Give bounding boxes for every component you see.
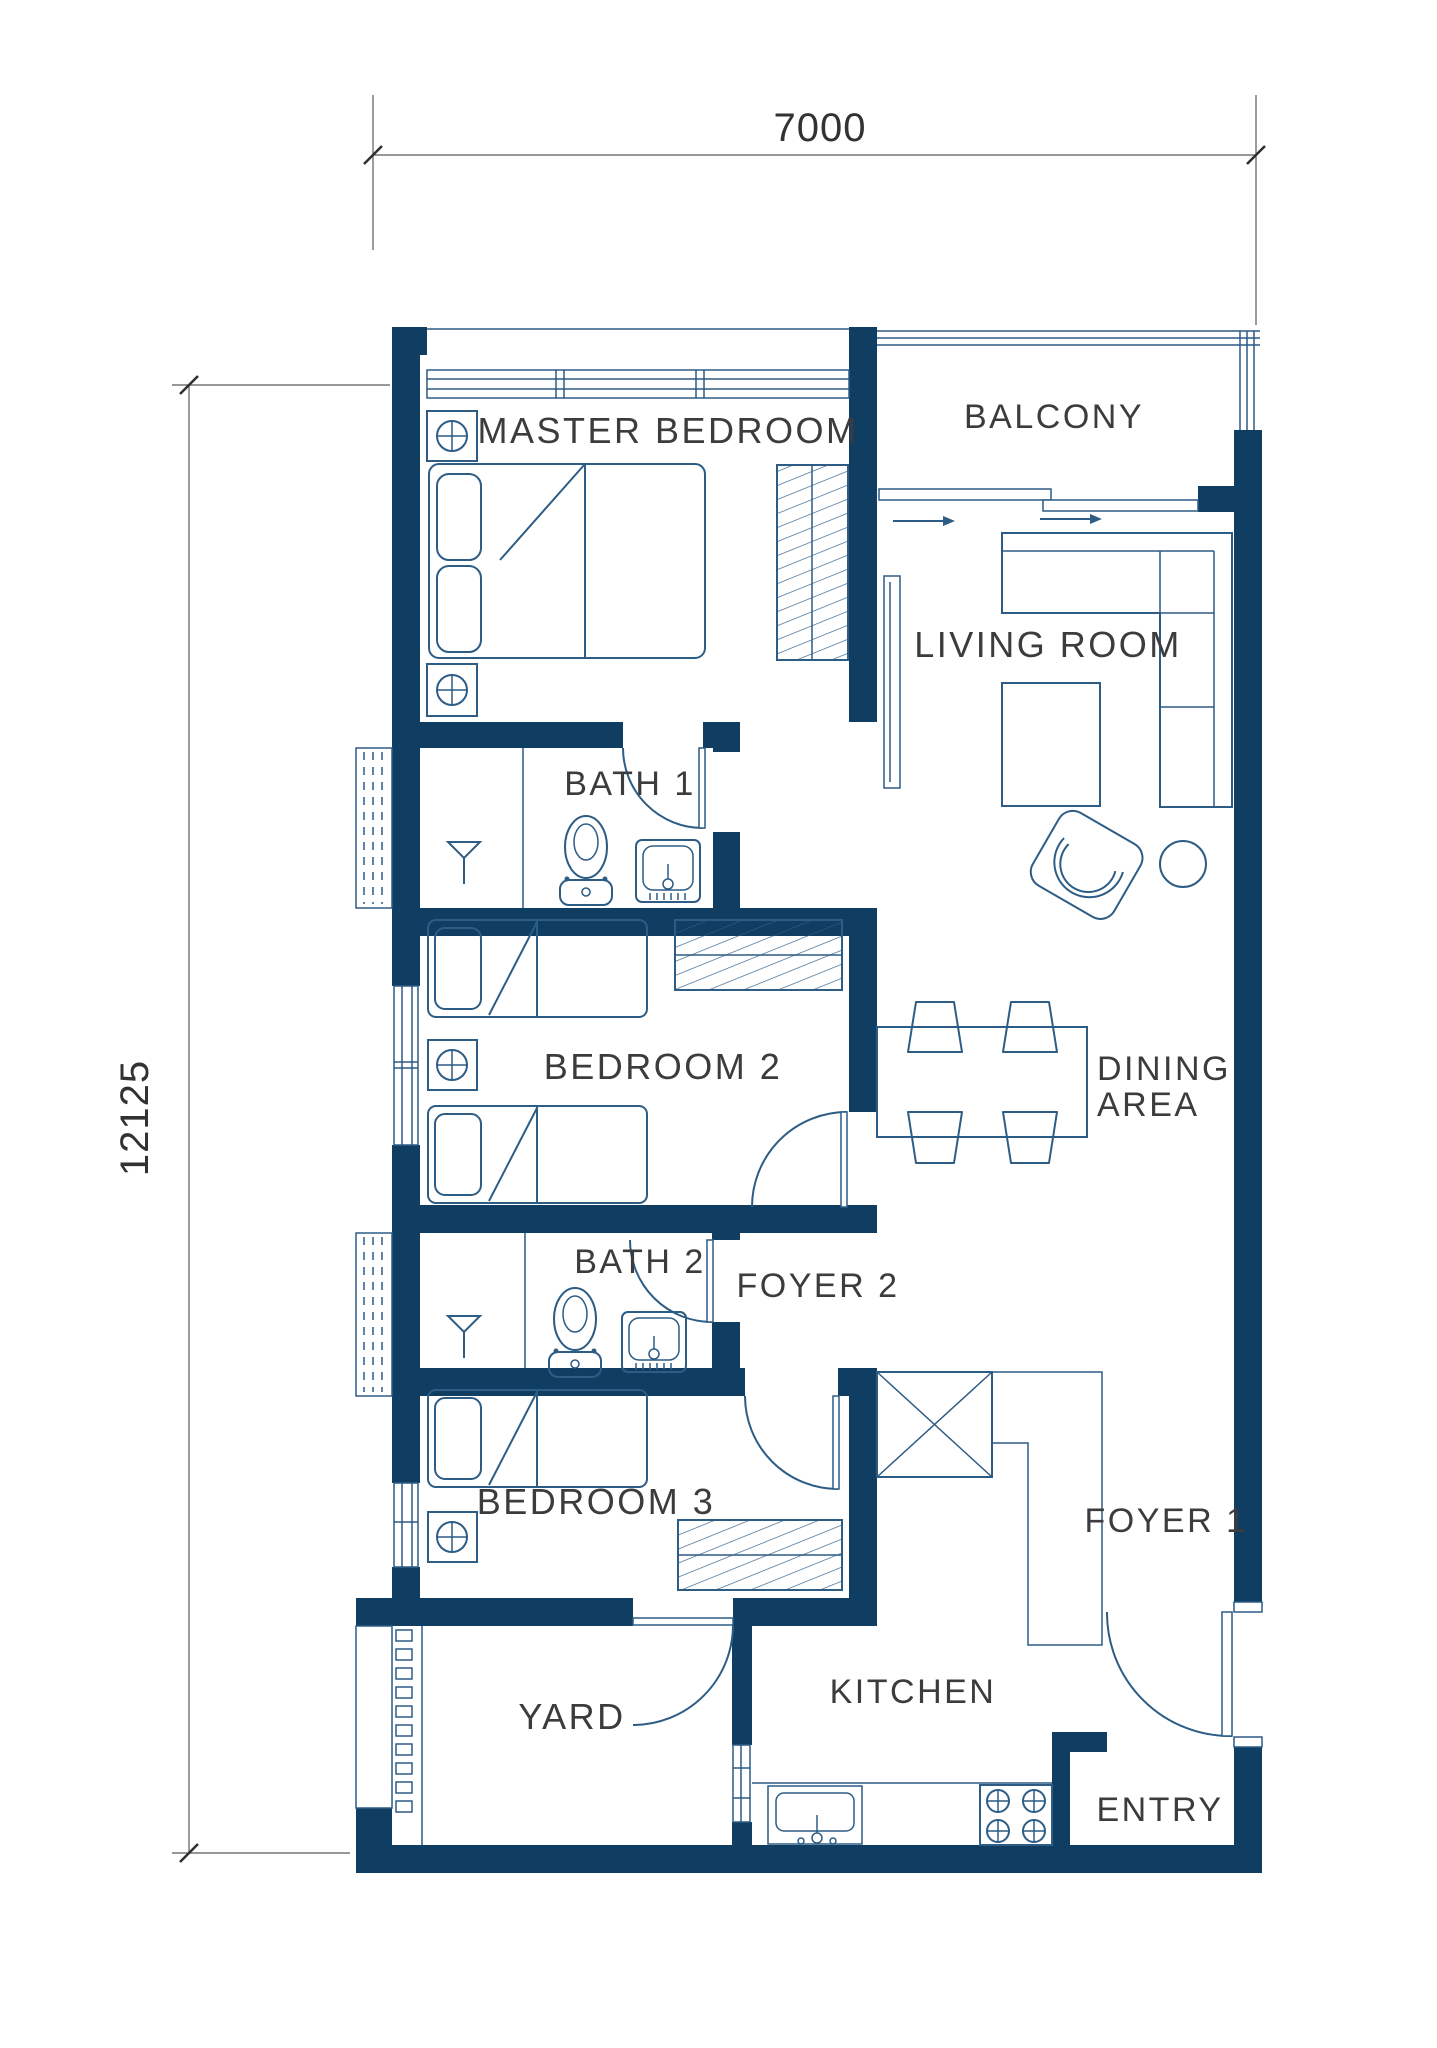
dimension-top: 7000 — [364, 95, 1265, 325]
room-label-bedroom-3: BEDROOM 3 — [477, 1481, 716, 1522]
wall-segment — [1198, 486, 1234, 512]
double-bed-icon — [429, 464, 705, 658]
floor-plan-page: 7000 12125 — [0, 0, 1437, 2048]
ac-ledge-icon — [356, 748, 392, 908]
wardrobe-icon — [777, 465, 848, 660]
room-label-master-bedroom: MASTER BEDROOM — [477, 410, 858, 451]
yard-door-swing-icon — [633, 1618, 733, 1725]
dimension-left-value: 12125 — [113, 1060, 157, 1176]
wall-segment — [1234, 430, 1262, 1612]
single-bed-icon — [428, 1390, 647, 1487]
room-label-bath-2: BATH 2 — [574, 1243, 706, 1281]
room-label-foyer-2: FOYER 2 — [737, 1267, 900, 1305]
basin-icon — [622, 1312, 686, 1372]
room-label-foyer-1: FOYER 1 — [1085, 1502, 1248, 1540]
nightstand-lamp-icon — [428, 1040, 477, 1090]
entry-door-swing-icon — [1107, 1602, 1262, 1747]
wall-segment — [849, 908, 877, 1112]
wall-segment — [420, 1205, 877, 1233]
louver-icon — [396, 1626, 422, 1845]
room-label-dining-area-line2: AREA — [1097, 1086, 1200, 1124]
wall-segment — [1052, 1752, 1070, 1845]
wall-segment — [713, 722, 740, 752]
toilet-icon — [560, 816, 612, 905]
kitchen-sink-icon — [768, 1786, 862, 1844]
stove-icon — [980, 1785, 1052, 1845]
wall-segment — [420, 1368, 745, 1396]
wall-segment — [392, 1845, 1262, 1873]
wall-segment — [733, 1598, 877, 1626]
wall-segment — [1052, 1732, 1107, 1752]
nightstand-lamp-icon — [427, 411, 477, 461]
room-label-balcony: BALCONY — [964, 398, 1144, 436]
master-bedroom-window — [427, 329, 849, 398]
bedroom-2-door-swing-icon — [752, 1112, 847, 1207]
yard-window — [730, 1745, 754, 1822]
dimension-top-value: 7000 — [774, 106, 867, 150]
basin-icon — [636, 840, 700, 902]
sofa-icon — [1002, 533, 1232, 807]
dimension-left: 12125 — [113, 376, 390, 1862]
ac-ledge-icon — [356, 1233, 392, 1396]
wall-segment — [849, 327, 877, 722]
balcony-sliding-door — [879, 489, 1198, 526]
coffee-table-icon — [1002, 683, 1100, 806]
wall-segment — [732, 1626, 752, 1745]
bedroom-3-window — [390, 1483, 422, 1567]
wardrobe-icon — [678, 1520, 842, 1590]
single-bed-icon — [428, 1106, 647, 1203]
utility-box-icon — [877, 1372, 992, 1477]
nightstand-lamp-icon — [427, 664, 477, 716]
shower-icon — [448, 748, 523, 908]
toilet-icon — [549, 1288, 601, 1377]
bedroom-3-door-swing-icon — [745, 1396, 839, 1489]
room-label-bath-1: BATH 1 — [564, 765, 696, 803]
armchair-icon — [1025, 805, 1148, 925]
wall-segment — [356, 1598, 633, 1626]
tv-console-icon — [884, 576, 900, 788]
wall-segment — [712, 1205, 740, 1240]
shower-icon — [448, 1233, 525, 1368]
wall-segment — [392, 327, 420, 1626]
wall-segment — [392, 327, 427, 355]
wall-segment — [356, 1808, 392, 1873]
yard-ledge — [356, 1626, 392, 1808]
nightstand-lamp-icon — [428, 1512, 477, 1562]
wall-segment — [849, 1368, 877, 1626]
room-label-kitchen: KITCHEN — [830, 1673, 997, 1711]
wall-segment — [732, 1822, 752, 1845]
room-label-yard: YARD — [518, 1696, 625, 1737]
side-table-icon — [1160, 841, 1206, 887]
room-label-entry: ENTRY — [1096, 1791, 1223, 1829]
room-label-living-room: LIVING ROOM — [914, 624, 1182, 665]
room-label-dining-area-line1: DINING — [1097, 1050, 1231, 1088]
wall-segment — [420, 722, 623, 748]
bedroom-2-window — [390, 986, 422, 1145]
room-label-bedroom-2: BEDROOM 2 — [544, 1046, 783, 1087]
wardrobe-icon — [675, 920, 842, 990]
floor-plan: 7000 12125 — [0, 0, 1437, 2048]
